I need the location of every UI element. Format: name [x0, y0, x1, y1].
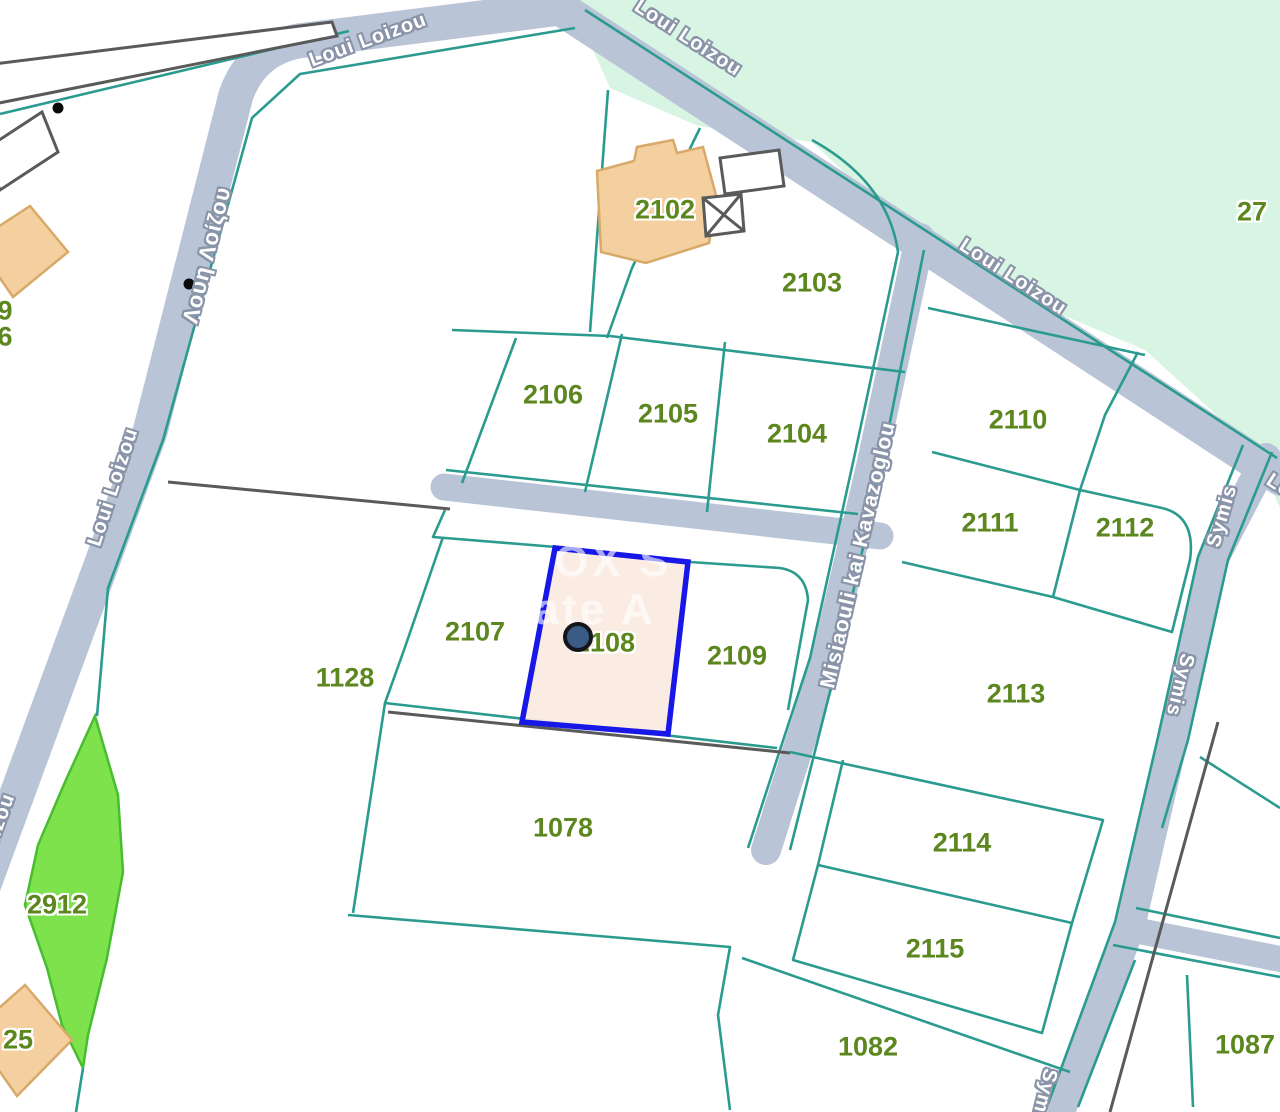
building-outline-small	[0, 112, 58, 190]
crossed-box-icon	[703, 194, 744, 236]
selected-parcel-2108[interactable]	[522, 548, 688, 734]
building-orange-left	[0, 206, 68, 297]
cadastral-map[interactable]: 2102210321062105210421102111211221072108…	[0, 0, 1280, 1112]
building-outline-strip	[0, 22, 337, 104]
survey-line-1	[168, 482, 450, 509]
road-symis	[1062, 458, 1266, 1107]
point-dot-1	[53, 103, 64, 114]
building-outline-2102-annex	[720, 150, 784, 194]
survey-lines	[168, 482, 1218, 1112]
building-orange-2102	[597, 140, 717, 263]
point-dot-2	[184, 279, 195, 290]
map-canvas	[0, 0, 1280, 1112]
map-marker[interactable]	[563, 622, 593, 652]
boundary-point-dots	[53, 103, 195, 290]
